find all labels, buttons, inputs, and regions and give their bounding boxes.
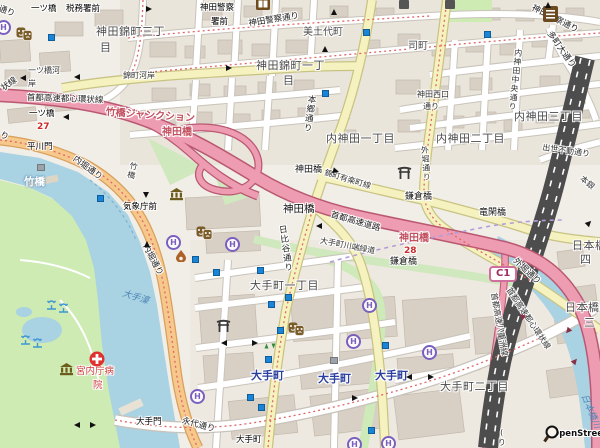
map-label: 内神田一丁目 <box>326 133 395 146</box>
map-label: 三 <box>584 317 596 330</box>
oneway-arrow-icon <box>322 46 328 52</box>
map-label: 税務署前 <box>66 5 100 15</box>
map-label: 神田錦町一丁 <box>256 60 325 73</box>
hotel-icon: H <box>381 436 396 448</box>
subway-entrance-marker <box>247 394 254 401</box>
hotel-icon: H <box>346 334 361 349</box>
map-label: 鎌倉橋 <box>390 257 417 267</box>
hotel-icon: H <box>0 20 11 35</box>
map-label: (り <box>497 428 506 447</box>
map-label: 神田錦町三丁 <box>96 26 165 39</box>
map-label: 一ツ橋 <box>29 110 55 120</box>
map-label: 通り <box>423 102 439 111</box>
map-label: 一ツ橋河 <box>28 66 60 75</box>
map-label: 27 <box>37 122 50 132</box>
map-label: 院 <box>93 381 103 392</box>
graysq-icon <box>330 357 338 364</box>
graysq-icon <box>37 164 45 171</box>
map-label: OpenStreetMap <box>552 430 600 440</box>
map-label: 日本橋 <box>572 240 600 253</box>
oneway-arrow-icon <box>63 114 69 120</box>
oneway-arrow-icon <box>144 241 150 247</box>
map-label: 竹橋 <box>24 176 45 188</box>
map-label: 岸 <box>28 79 36 88</box>
map-label: 大手門 <box>136 418 162 428</box>
map-label: 竜閑橋 <box>479 208 506 218</box>
oneway-arrow-icon <box>252 340 258 346</box>
map-label: 平川門 <box>27 143 53 153</box>
subway-entrance-marker <box>277 327 284 334</box>
map-canvas[interactable]: 通り一ツ橋税務署前神田警察署前神田警察通り美土代町神田警察通り多町大通り神田錦町… <box>0 0 600 448</box>
map-label: 美土代町 <box>303 27 343 39</box>
hotel-icon: H <box>190 389 205 404</box>
hotel-icon: H <box>225 237 240 252</box>
subway-entrance-marker <box>48 34 55 41</box>
oneway-arrow-icon <box>74 74 80 80</box>
map-label: 錦町河岸 <box>123 71 155 80</box>
map-label: 神田橋 <box>162 127 192 139</box>
hotel-icon: H <box>362 298 377 313</box>
subway-entrance-marker <box>484 31 491 38</box>
map-label: 神田橋 <box>283 203 315 215</box>
subway-entrance-marker <box>363 29 370 36</box>
map-label: 神田橋 <box>399 233 429 245</box>
subway-entrance-marker <box>213 269 220 276</box>
map-label: 四 <box>580 254 592 267</box>
map-label: 内神田二丁目 <box>436 133 505 146</box>
oneway-arrow-icon <box>352 395 358 401</box>
oneway-arrow-icon <box>143 192 149 198</box>
oneway-arrow-icon <box>20 75 26 81</box>
map-label: 内神田三丁目 <box>514 111 583 124</box>
oneway-arrow-icon <box>226 65 232 71</box>
subway-entrance-marker <box>268 301 275 308</box>
subway-entrance-marker <box>265 356 272 363</box>
map-label: 一ツ橋 <box>31 5 57 15</box>
map-label: 大手町 <box>251 370 284 383</box>
map-label: 大手町 <box>318 373 351 386</box>
map-label: 神田西口 <box>417 90 449 99</box>
subway-entrance-marker <box>257 267 264 274</box>
map-label: 署前 <box>211 18 228 28</box>
route-shield: C1 <box>489 266 517 282</box>
oneway-arrow-icon <box>90 422 96 428</box>
map-label: 大手町二丁目 <box>440 381 509 394</box>
subway-entrance-marker <box>322 90 329 97</box>
oneway-arrow-icon <box>221 340 227 346</box>
map-label: 気象庁前 <box>123 203 157 213</box>
subway-entrance-marker <box>368 427 375 434</box>
hotel-icon: H <box>422 345 437 360</box>
oneway-arrow-icon <box>428 374 434 380</box>
map-label: 28 <box>404 246 417 256</box>
map-label: 神田警察 <box>200 4 234 14</box>
oneway-arrow-icon <box>272 344 276 349</box>
oneway-arrow-icon <box>74 422 80 428</box>
map-label: 大手町 <box>236 436 262 446</box>
map-label: 大手町一丁目 <box>250 280 319 293</box>
oneway-arrow-icon <box>545 2 551 8</box>
subway-entrance-marker <box>382 342 389 349</box>
map-label: 大手町 <box>375 370 408 383</box>
map-label: 宮内庁病 <box>76 367 114 378</box>
subway-entrance-marker <box>97 195 104 202</box>
oneway-arrow-icon <box>265 344 269 349</box>
subway-entrance-marker <box>258 404 265 411</box>
map-label: 日本橋 <box>565 302 600 315</box>
subway-entrance-marker <box>285 294 292 301</box>
map-label: 神田橋 <box>295 165 322 175</box>
subway-entrance-marker <box>192 256 199 263</box>
hotel-icon: H <box>166 235 181 250</box>
oneway-arrow-icon <box>316 223 322 229</box>
map-label: 鎌倉橋 <box>405 192 432 202</box>
oneway-arrow-icon <box>331 9 337 15</box>
oneway-arrow-icon <box>406 374 412 380</box>
map-label: 目 <box>283 75 295 88</box>
oneway-arrow-icon <box>146 6 152 12</box>
map-label: 司町 <box>408 41 428 53</box>
hotel-icon: H <box>347 437 362 448</box>
map-label: 目 <box>100 42 112 55</box>
